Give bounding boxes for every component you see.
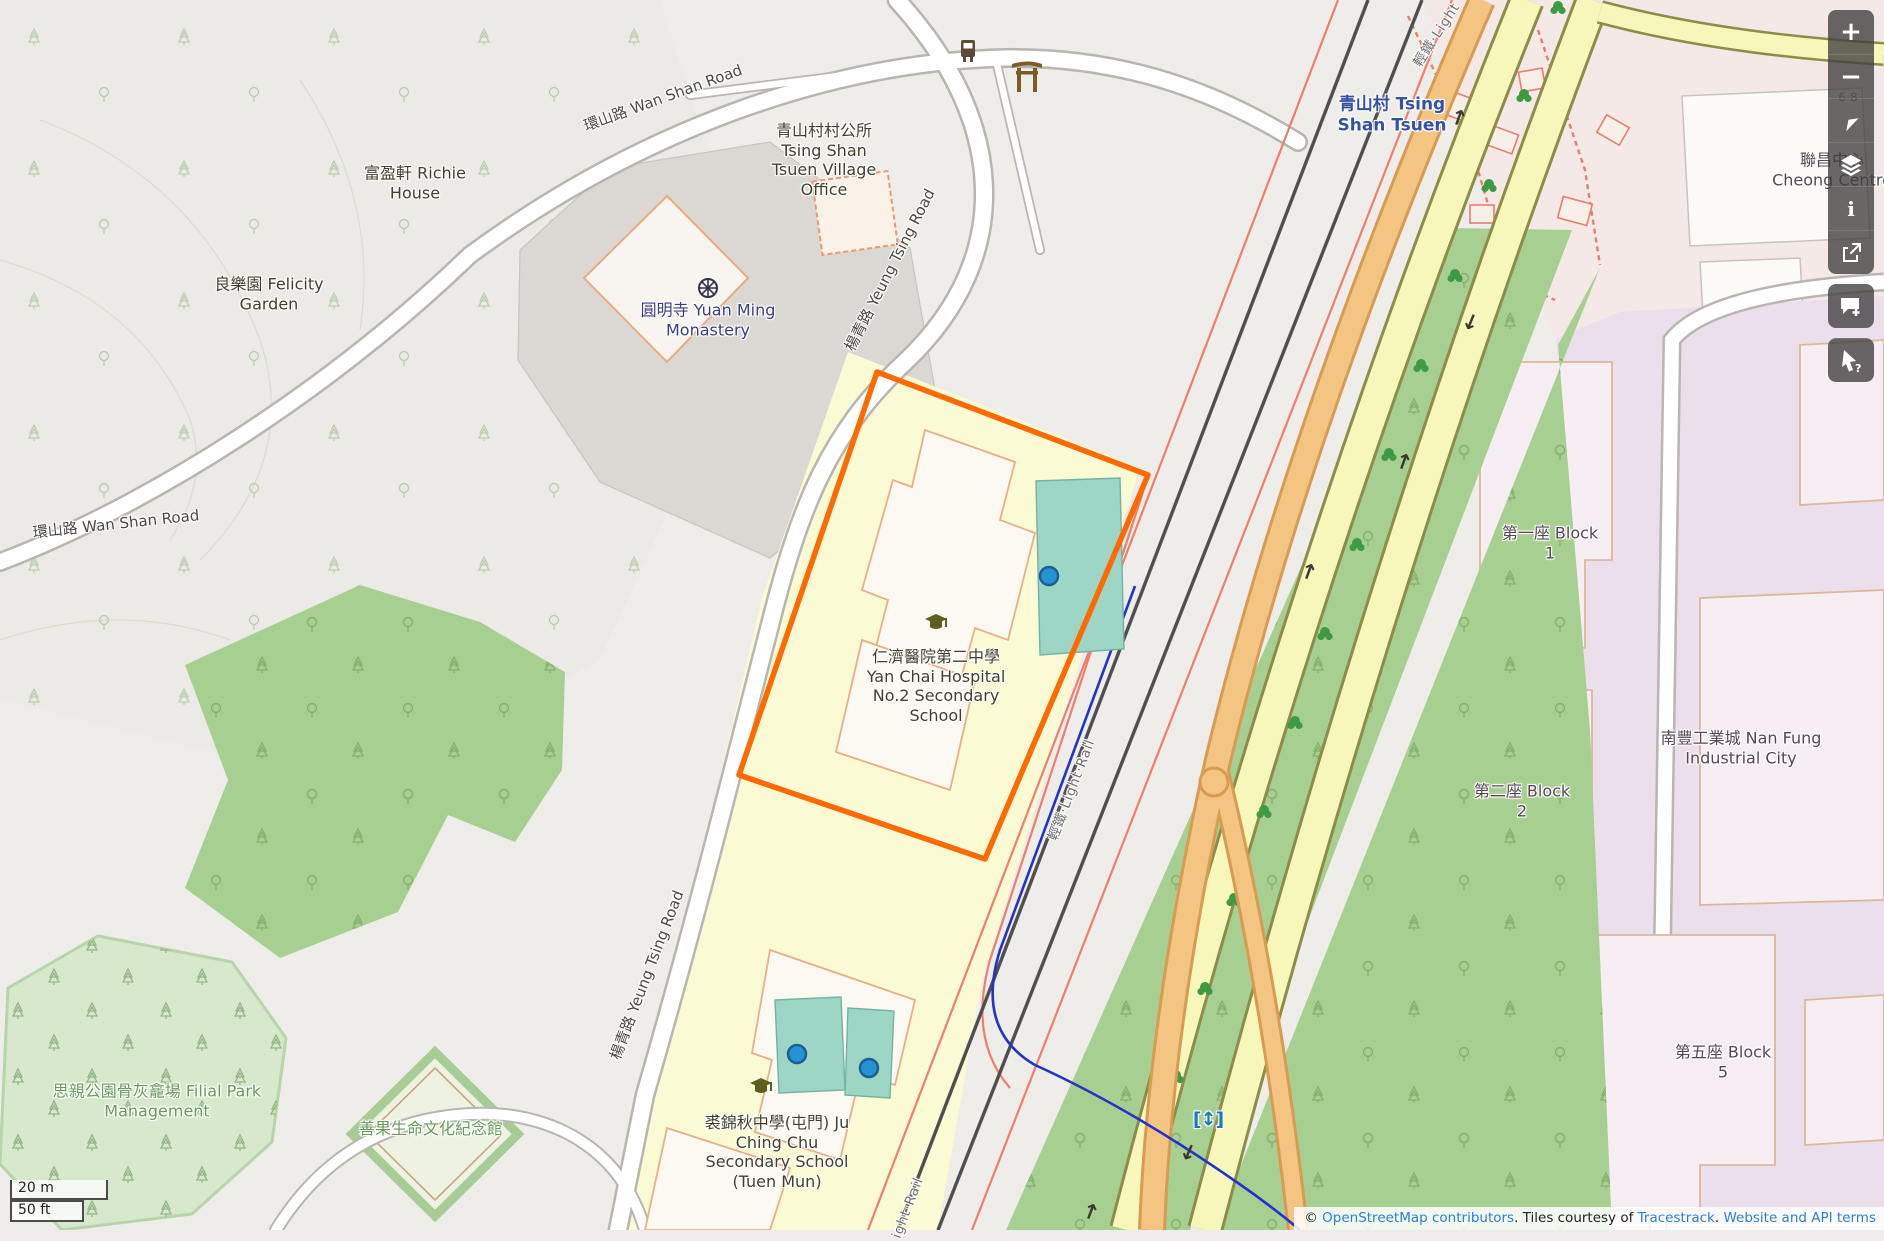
scale-bar: 20 m 50 ft (10, 1180, 108, 1222)
share-button[interactable] (1828, 230, 1874, 274)
show-my-location-button[interactable] (1828, 98, 1874, 142)
tracestrack-link[interactable]: Tracestrack (1638, 1210, 1715, 1226)
zoom-in-button[interactable]: + (1828, 10, 1874, 54)
scale-metric: 20 m (10, 1180, 108, 1200)
add-note-button[interactable] (1828, 284, 1874, 328)
map-tiles: ↑ ↓ ↑ ↑ ↓ ↑ (0, 0, 1884, 1230)
attribution-middle: . Tiles courtesy of (1514, 1210, 1638, 1226)
terms-link[interactable]: Website and API terms (1723, 1210, 1876, 1226)
osm-contributors-link[interactable]: OpenStreetMap contributors (1322, 1210, 1514, 1226)
share-icon (1840, 242, 1862, 264)
layers-button[interactable] (1828, 142, 1874, 186)
village-office-building (812, 171, 898, 255)
zoom-out-button[interactable]: − (1828, 54, 1874, 98)
attribution-bar: © OpenStreetMap contributors. Tiles cour… (1294, 1207, 1884, 1230)
map-controls: + − i ? (1828, 10, 1874, 382)
about-button[interactable]: i (1828, 186, 1874, 230)
query-cursor-icon: ? (1838, 348, 1864, 374)
dharma-wheel-icon (699, 279, 717, 297)
scale-imperial: 50 ft (10, 1200, 84, 1222)
main-control-group: + − i (1828, 10, 1874, 274)
copyright-prefix: © (1304, 1210, 1322, 1226)
layers-icon (1839, 153, 1863, 177)
query-features-button[interactable]: ? (1828, 338, 1874, 382)
note-icon (1839, 294, 1863, 318)
svg-text:?: ? (1855, 362, 1861, 374)
locate-arrow-icon (1840, 110, 1862, 132)
map-canvas[interactable]: ↑ ↓ ↑ ↑ ↓ ↑ 環山路 Wan Shan Road 環山路 Wan (0, 0, 1884, 1230)
